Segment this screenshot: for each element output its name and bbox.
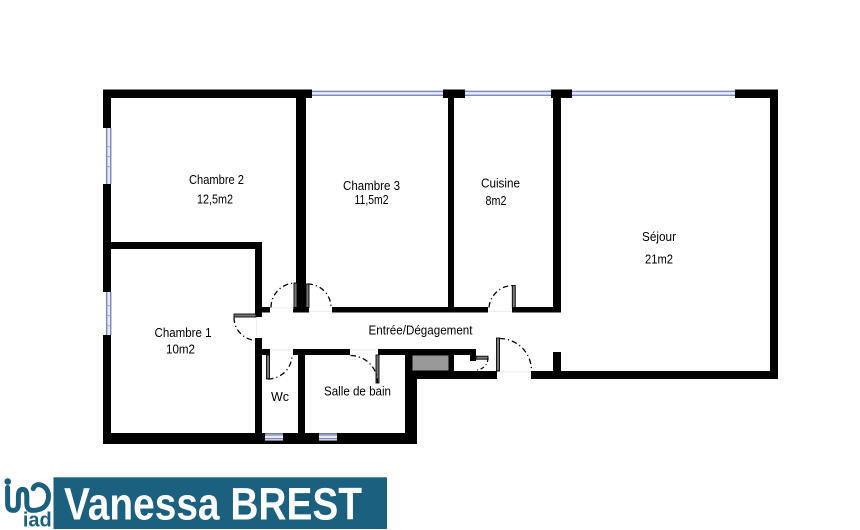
svg-text:21m2: 21m2 [645, 253, 673, 267]
svg-text:11,5m2: 11,5m2 [355, 193, 389, 207]
svg-text:Chambre 1: Chambre 1 [155, 326, 212, 340]
svg-text:Séjour: Séjour [642, 230, 676, 244]
svg-text:Wc: Wc [271, 390, 289, 404]
svg-text:10m2: 10m2 [166, 343, 195, 357]
svg-text:Cuisine: Cuisine [481, 177, 520, 191]
svg-text:8m2: 8m2 [486, 194, 507, 208]
svg-text:12,5m2: 12,5m2 [197, 193, 233, 207]
svg-text:Entrée/Dégagement: Entrée/Dégagement [369, 324, 473, 338]
svg-text:Vanessa BREST: Vanessa BREST [64, 479, 362, 530]
svg-text:Salle de bain: Salle de bain [324, 385, 391, 399]
svg-text:Chambre 3: Chambre 3 [343, 179, 400, 193]
svg-text:iad: iad [23, 509, 52, 530]
svg-text:Chambre 2: Chambre 2 [189, 173, 244, 187]
